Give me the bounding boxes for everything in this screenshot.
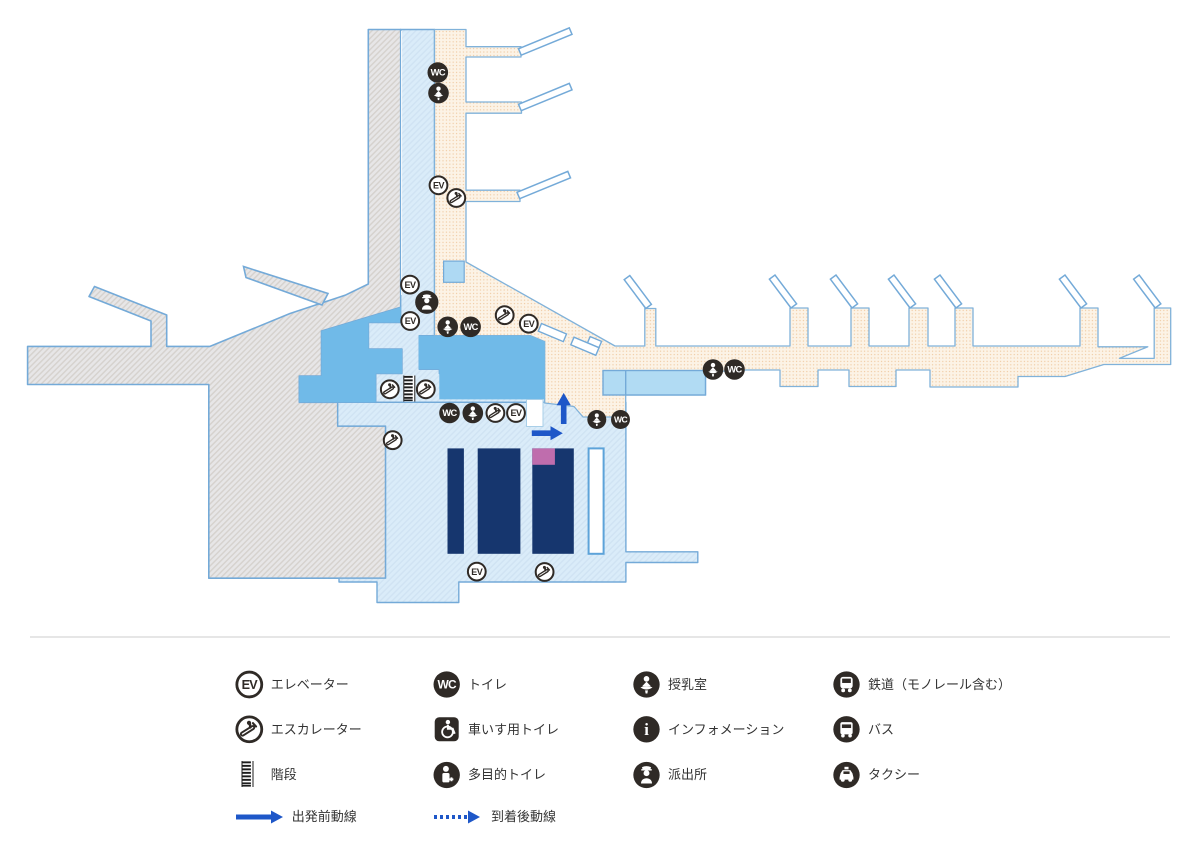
svg-text:到着後動線: 到着後動線 [491,809,556,824]
svg-text:タクシー: タクシー [868,767,920,782]
svg-text:バス: バス [868,722,894,737]
svg-text:多目的トイレ: 多目的トイレ [468,767,546,782]
svg-text:鉄道（モノレール含む）: 鉄道（モノレール含む） [868,677,1011,692]
svg-text:授乳室: 授乳室 [668,677,707,692]
svg-text:階段: 階段 [271,767,297,782]
svg-text:エレベーター: エレベーター [271,677,349,692]
svg-text:派出所: 派出所 [668,767,707,782]
svg-text:インフォメーション: インフォメーション [668,722,784,737]
svg-text:トイレ: トイレ [468,677,507,692]
svg-text:車いす用トイレ: 車いす用トイレ [468,722,559,737]
svg-text:エスカレーター: エスカレーター [271,722,362,737]
svg-text:出発前動線: 出発前動線 [292,809,357,824]
